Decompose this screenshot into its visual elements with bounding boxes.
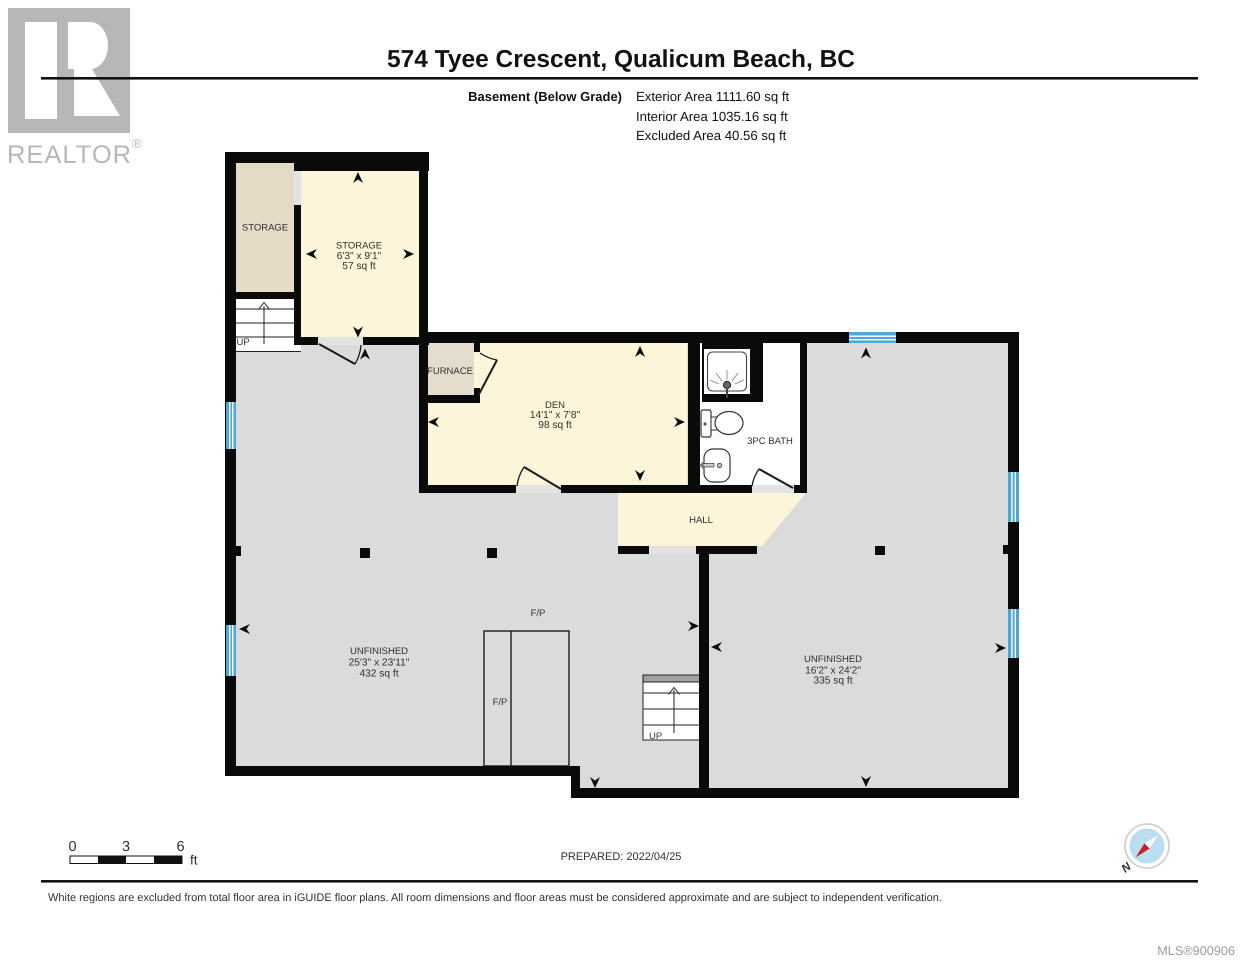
svg-text:UNFINISHED: UNFINISHED: [804, 654, 862, 665]
svg-text:HALL: HALL: [689, 515, 713, 526]
svg-text:UP: UP: [649, 731, 662, 742]
svg-text:STORAGE: STORAGE: [242, 223, 288, 234]
svg-text:57 sq ft: 57 sq ft: [342, 261, 376, 272]
svg-text:25'3" x 23'11": 25'3" x 23'11": [349, 658, 410, 669]
svg-text:Basement (Below Grade): Basement (Below Grade): [468, 89, 622, 104]
svg-text:Excluded Area 40.56 sq ft: Excluded Area 40.56 sq ft: [636, 128, 787, 143]
svg-text:3: 3: [122, 839, 130, 855]
svg-text:®: ®: [132, 136, 142, 151]
svg-text:Interior Area 1035.16 sq ft: Interior Area 1035.16 sq ft: [636, 109, 788, 124]
svg-text:FURNACE: FURNACE: [427, 366, 473, 377]
svg-text:F/P: F/P: [531, 608, 546, 619]
svg-text:Exterior Area 1111.60 sq ft: Exterior Area 1111.60 sq ft: [636, 89, 790, 104]
svg-text:6: 6: [176, 839, 184, 855]
svg-text:STORAGE: STORAGE: [336, 241, 382, 252]
svg-text:98 sq ft: 98 sq ft: [538, 420, 572, 431]
svg-text:ft: ft: [190, 853, 198, 868]
svg-text:F/P: F/P: [493, 697, 508, 708]
svg-text:432 sq ft: 432 sq ft: [359, 669, 398, 680]
svg-text:0: 0: [68, 839, 76, 855]
svg-text:UNFINISHED: UNFINISHED: [350, 646, 408, 657]
svg-text:UP: UP: [237, 337, 250, 348]
svg-text:PREPARED: 2022/04/25: PREPARED: 2022/04/25: [561, 851, 682, 863]
svg-text:3PC BATH: 3PC BATH: [747, 436, 793, 447]
svg-text:574 Tyee Crescent, Qualicum Be: 574 Tyee Crescent, Qualicum Beach, BC: [387, 46, 855, 73]
svg-text:REALTOR: REALTOR: [7, 141, 132, 169]
svg-text:335 sq ft: 335 sq ft: [813, 676, 852, 687]
svg-text:MLS®900906: MLS®900906: [1157, 944, 1235, 958]
svg-text:White regions are excluded fro: White regions are excluded from total fl…: [48, 892, 942, 904]
